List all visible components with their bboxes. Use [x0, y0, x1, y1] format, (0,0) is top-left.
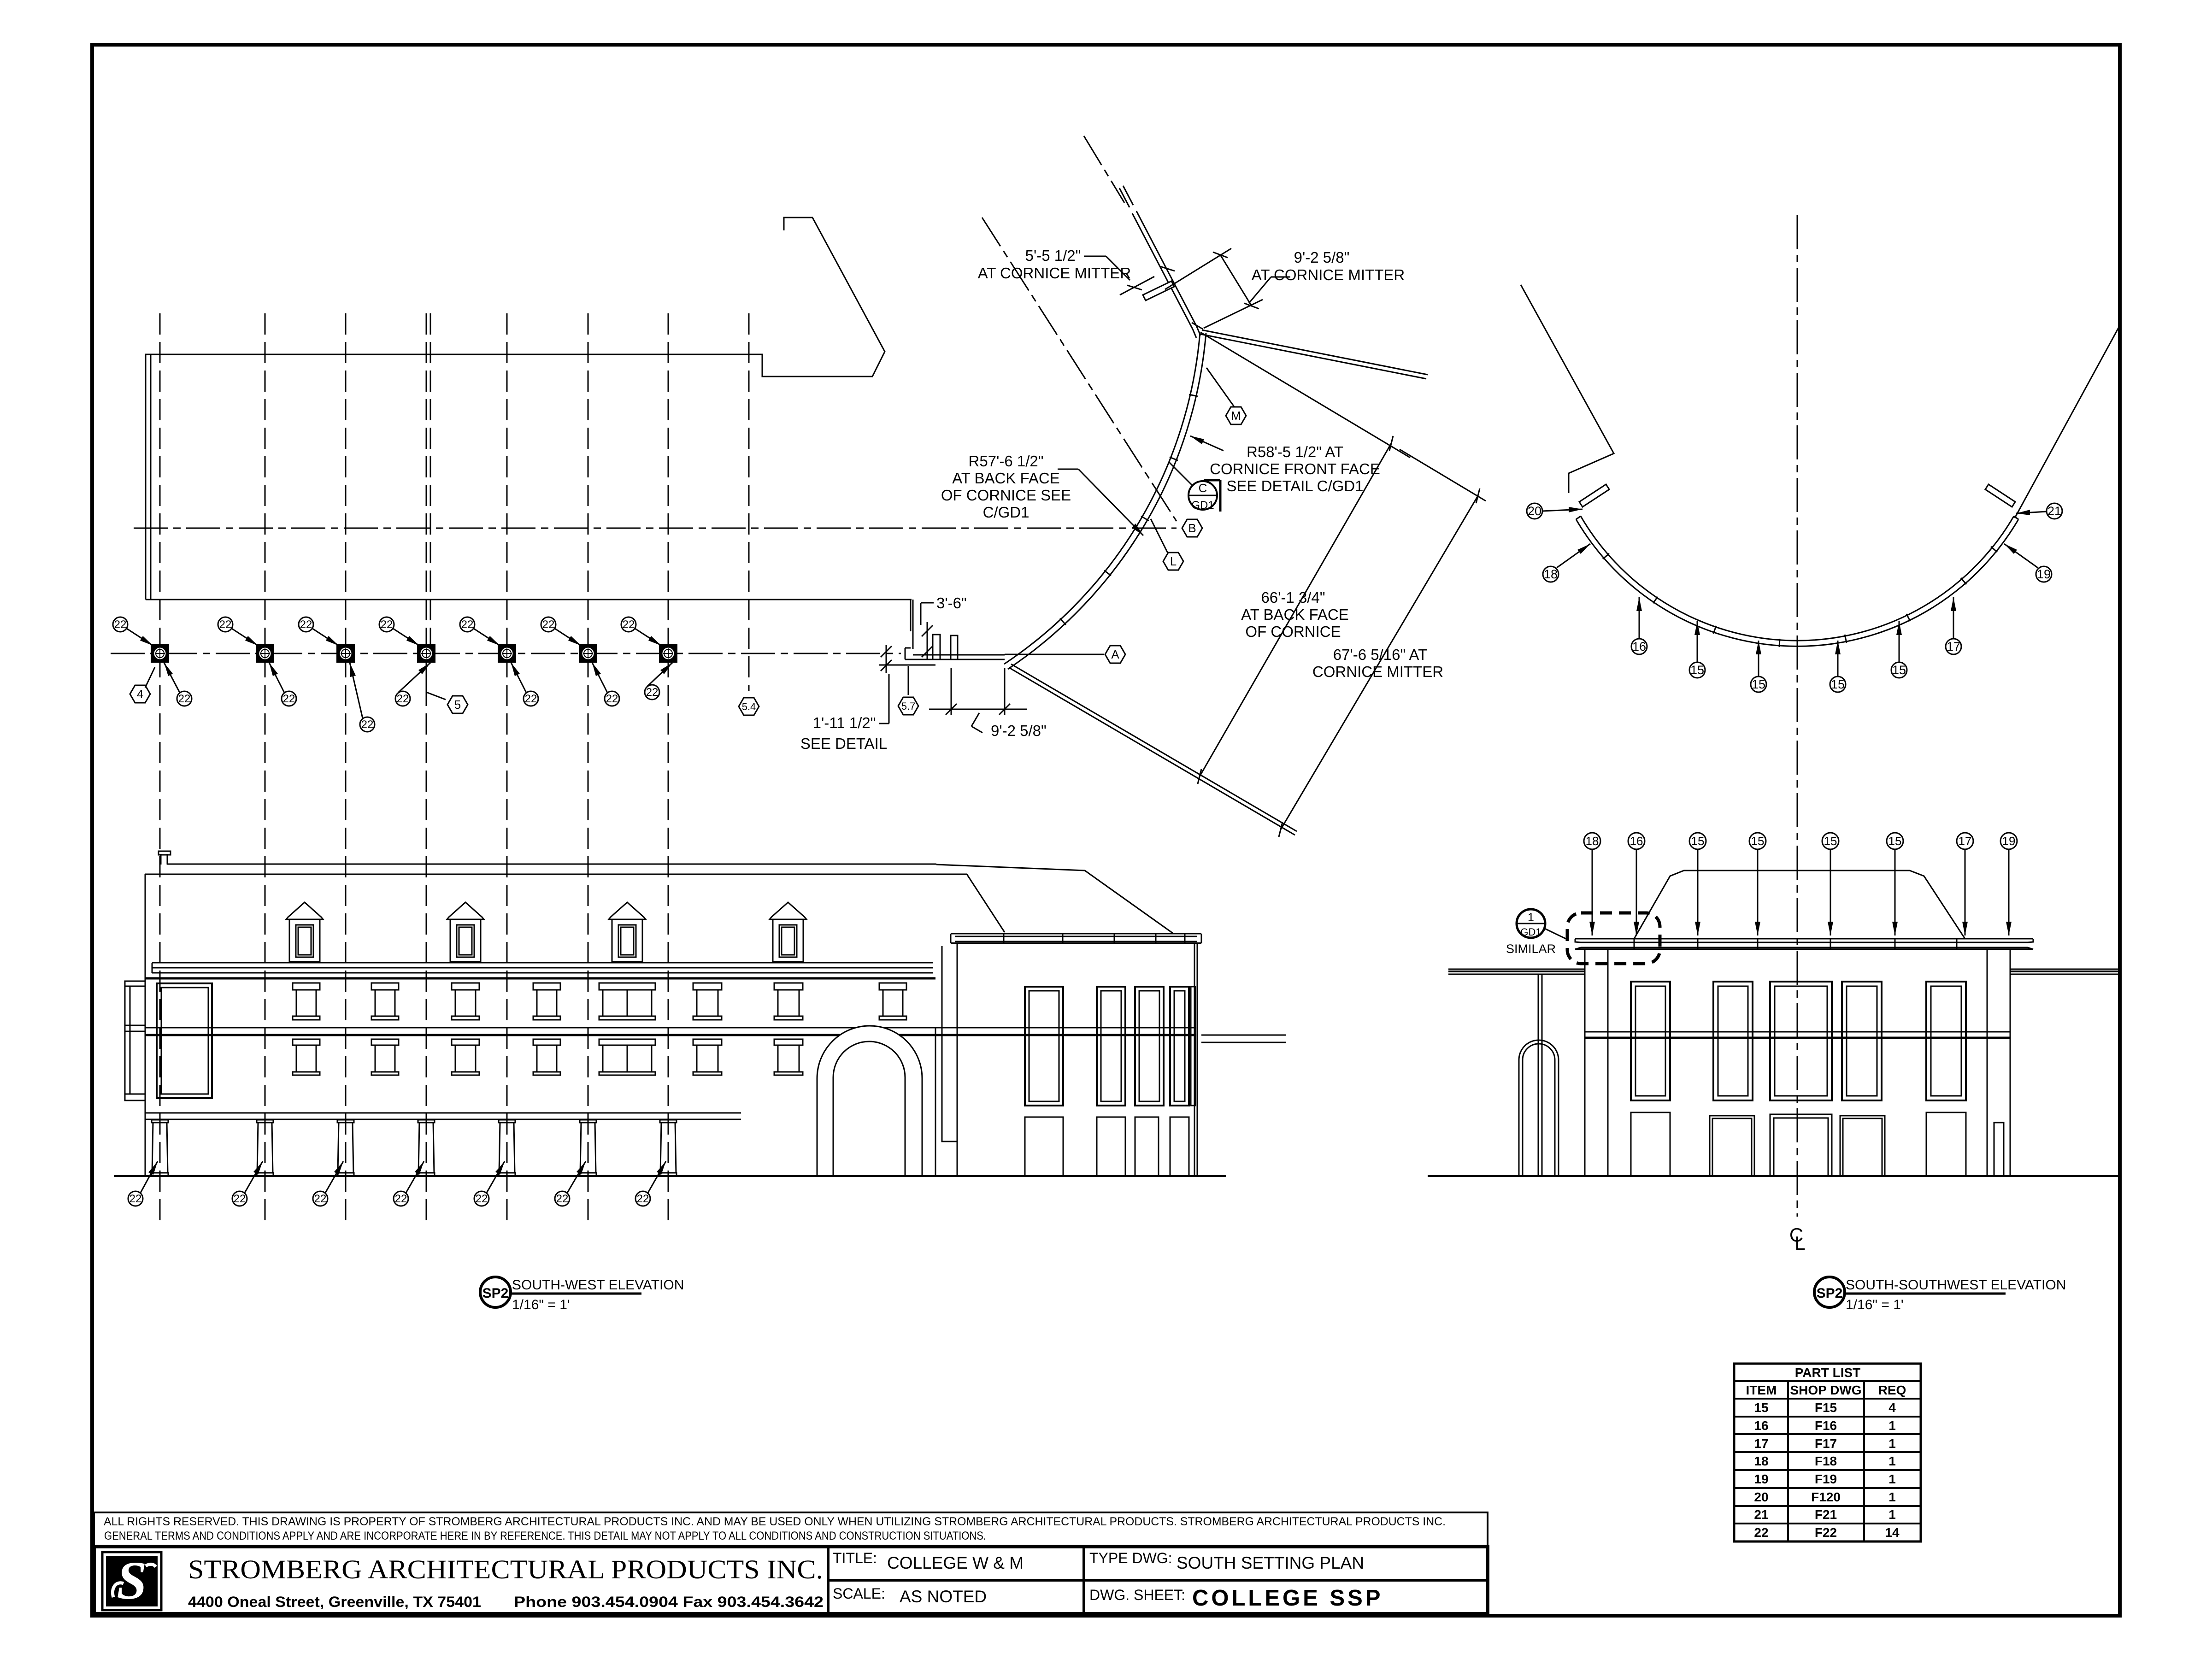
- svg-text:18: 18: [1754, 1454, 1768, 1468]
- svg-text:F17: F17: [1815, 1436, 1837, 1451]
- svg-text:15: 15: [1690, 663, 1704, 677]
- svg-text:TYPE DWG:: TYPE DWG:: [1089, 1550, 1172, 1566]
- svg-text:14: 14: [1885, 1525, 1900, 1540]
- svg-text:B: B: [1188, 521, 1196, 535]
- svg-text:C/GD1: C/GD1: [983, 504, 1030, 521]
- svg-text:22: 22: [395, 1193, 407, 1205]
- svg-text:15: 15: [1824, 834, 1837, 848]
- svg-text:M: M: [1231, 409, 1241, 423]
- svg-text:1: 1: [1888, 1507, 1896, 1522]
- svg-text:22: 22: [623, 618, 635, 631]
- svg-text:22: 22: [129, 1193, 142, 1205]
- svg-text:REQ: REQ: [1878, 1383, 1906, 1397]
- svg-text:17: 17: [1947, 640, 1960, 653]
- svg-text:1: 1: [1888, 1418, 1896, 1433]
- svg-text:GD1: GD1: [1520, 926, 1541, 938]
- svg-text:3'-6": 3'-6": [936, 594, 967, 612]
- svg-text:STROMBERG ARCHITECTURAL PRODUC: STROMBERG ARCHITECTURAL PRODUCTS INC.: [188, 1554, 823, 1584]
- svg-text:1'-11 1/2": 1'-11 1/2": [813, 714, 876, 731]
- svg-text:16: 16: [1754, 1418, 1768, 1433]
- svg-text:COLLEGE W & M: COLLEGE W & M: [887, 1553, 1024, 1572]
- svg-text:9'-2 5/8": 9'-2 5/8": [991, 722, 1047, 739]
- svg-text:C: C: [1199, 481, 1207, 495]
- svg-text:AT BACK FACE: AT BACK FACE: [1241, 606, 1349, 623]
- svg-text:SOUTH-WEST ELEVATION: SOUTH-WEST ELEVATION: [512, 1277, 684, 1293]
- svg-text:R58'-5 1/2" AT: R58'-5 1/2" AT: [1247, 443, 1343, 460]
- svg-text:1: 1: [1888, 1490, 1896, 1504]
- svg-text:20: 20: [1528, 504, 1541, 518]
- svg-text:9'-2 5/8": 9'-2 5/8": [1294, 249, 1350, 266]
- svg-text:16: 16: [1630, 834, 1643, 848]
- svg-text:22: 22: [556, 1193, 569, 1205]
- svg-text:CORNICE FRONT FACE: CORNICE FRONT FACE: [1210, 460, 1380, 477]
- svg-text:F16: F16: [1815, 1418, 1837, 1433]
- svg-text:22: 22: [314, 1193, 327, 1205]
- svg-text:22: 22: [542, 618, 555, 631]
- svg-text:20: 20: [1754, 1490, 1768, 1504]
- svg-text:S: S: [117, 1550, 147, 1611]
- svg-text:1/16" = 1': 1/16" = 1': [1846, 1297, 1904, 1312]
- svg-text:22: 22: [637, 1193, 649, 1205]
- svg-text:CORNICE MITTER: CORNICE MITTER: [1312, 663, 1443, 680]
- svg-text:15: 15: [1888, 834, 1902, 848]
- svg-text:ITEM: ITEM: [1746, 1383, 1777, 1397]
- svg-text:SOUTH-SOUTHWEST ELEVATION: SOUTH-SOUTHWEST ELEVATION: [1846, 1277, 2066, 1293]
- svg-text:17: 17: [1754, 1436, 1768, 1451]
- svg-text:22: 22: [646, 686, 659, 699]
- svg-text:22: 22: [476, 1193, 488, 1205]
- svg-text:19: 19: [2037, 567, 2051, 581]
- svg-text:21: 21: [1754, 1507, 1768, 1522]
- svg-text:4400 Oneal Street, Greenville,: 4400 Oneal Street, Greenville, TX 75401: [188, 1594, 481, 1610]
- svg-text:22: 22: [283, 693, 295, 705]
- svg-text:15: 15: [1751, 834, 1765, 848]
- svg-text:15: 15: [1691, 834, 1705, 848]
- svg-text:L: L: [1170, 554, 1177, 568]
- svg-text:5: 5: [454, 698, 461, 712]
- svg-text:19: 19: [2002, 834, 2016, 848]
- svg-text:22: 22: [381, 618, 393, 631]
- svg-text:L: L: [1794, 1232, 1805, 1254]
- svg-text:18: 18: [1544, 567, 1558, 581]
- svg-text:SEE DETAIL C/GD1: SEE DETAIL C/GD1: [1226, 477, 1363, 494]
- svg-text:66'-1 3/4": 66'-1 3/4": [1261, 589, 1325, 606]
- svg-text:R57'-6 1/2": R57'-6 1/2": [969, 453, 1044, 470]
- svg-text:ALL RIGHTS RESERVED. THIS DRAW: ALL RIGHTS RESERVED. THIS DRAWING IS PRO…: [104, 1515, 1446, 1528]
- svg-text:COLLEGE SSP: COLLEGE SSP: [1192, 1586, 1383, 1611]
- svg-text:TITLE:: TITLE:: [833, 1550, 877, 1566]
- svg-text:SOUTH SETTING PLAN: SOUTH SETTING PLAN: [1177, 1553, 1364, 1572]
- svg-text:21: 21: [2047, 504, 2061, 518]
- svg-text:22: 22: [1754, 1525, 1768, 1540]
- svg-text:22: 22: [461, 618, 474, 631]
- svg-text:1: 1: [1888, 1454, 1896, 1468]
- svg-text:22: 22: [361, 718, 374, 731]
- svg-text:AT CORNICE MITTER: AT CORNICE MITTER: [978, 265, 1131, 282]
- svg-text:GENERAL TERMS AND CONDITIONS A: GENERAL TERMS AND CONDITIONS APPLY AND A…: [104, 1530, 986, 1542]
- svg-text:OF CORNICE SEE: OF CORNICE SEE: [941, 487, 1071, 504]
- svg-text:SCALE:: SCALE:: [833, 1585, 885, 1602]
- svg-text:19: 19: [1754, 1472, 1768, 1486]
- svg-text:1: 1: [1528, 911, 1534, 924]
- svg-text:AT CORNICE MITTER: AT CORNICE MITTER: [1252, 266, 1405, 283]
- svg-text:15: 15: [1831, 677, 1845, 691]
- svg-text:F15: F15: [1815, 1400, 1837, 1415]
- svg-text:15: 15: [1754, 1400, 1768, 1415]
- svg-text:SEE DETAIL: SEE DETAIL: [800, 735, 887, 752]
- svg-text:16: 16: [1632, 640, 1646, 653]
- svg-text:F120: F120: [1811, 1490, 1841, 1504]
- svg-text:22: 22: [219, 618, 232, 631]
- svg-text:SIMILAR: SIMILAR: [1506, 942, 1556, 956]
- svg-text:15: 15: [1892, 663, 1906, 677]
- svg-text:DWG. SHEET:: DWG. SHEET:: [1089, 1587, 1185, 1603]
- svg-text:22: 22: [114, 618, 127, 631]
- svg-text:17: 17: [1959, 834, 1972, 848]
- svg-text:22: 22: [525, 693, 537, 705]
- svg-text:AT BACK FACE: AT BACK FACE: [952, 470, 1060, 487]
- svg-text:18: 18: [1586, 834, 1599, 848]
- svg-text:22: 22: [234, 1193, 246, 1205]
- svg-text:22: 22: [397, 693, 409, 705]
- svg-text:AS NOTED: AS NOTED: [900, 1587, 987, 1606]
- svg-text:OF CORNICE: OF CORNICE: [1245, 623, 1341, 640]
- svg-text:67'-6 5/16" AT: 67'-6 5/16" AT: [1333, 646, 1428, 663]
- svg-text:PART LIST: PART LIST: [1795, 1365, 1861, 1380]
- svg-text:F21: F21: [1815, 1507, 1837, 1522]
- svg-text:1/16" = 1': 1/16" = 1': [512, 1297, 570, 1312]
- svg-text:22: 22: [178, 693, 191, 705]
- svg-text:15: 15: [1752, 677, 1765, 691]
- svg-text:F18: F18: [1815, 1454, 1837, 1468]
- svg-text:Phone 903.454.0904 Fax 903.4: Phone 903.454.0904 Fax 903.454.3642: [514, 1594, 824, 1610]
- svg-text:5.7: 5.7: [901, 700, 916, 712]
- svg-text:SP2: SP2: [482, 1286, 509, 1301]
- svg-text:22: 22: [300, 618, 312, 631]
- svg-text:4: 4: [1888, 1400, 1896, 1415]
- svg-text:5'-5 1/2": 5'-5 1/2": [1025, 247, 1081, 264]
- svg-text:F22: F22: [1815, 1525, 1837, 1540]
- svg-text:A: A: [1111, 647, 1119, 661]
- svg-text:1: 1: [1888, 1436, 1896, 1451]
- svg-text:5.4: 5.4: [742, 701, 756, 712]
- svg-text:22: 22: [606, 693, 618, 705]
- svg-text:4: 4: [137, 687, 143, 701]
- svg-text:F19: F19: [1815, 1472, 1837, 1486]
- svg-text:SHOP DWG: SHOP DWG: [1790, 1383, 1861, 1397]
- svg-text:SP2: SP2: [1817, 1286, 1843, 1301]
- svg-text:1: 1: [1888, 1472, 1896, 1486]
- svg-text:GD1: GD1: [1191, 499, 1214, 512]
